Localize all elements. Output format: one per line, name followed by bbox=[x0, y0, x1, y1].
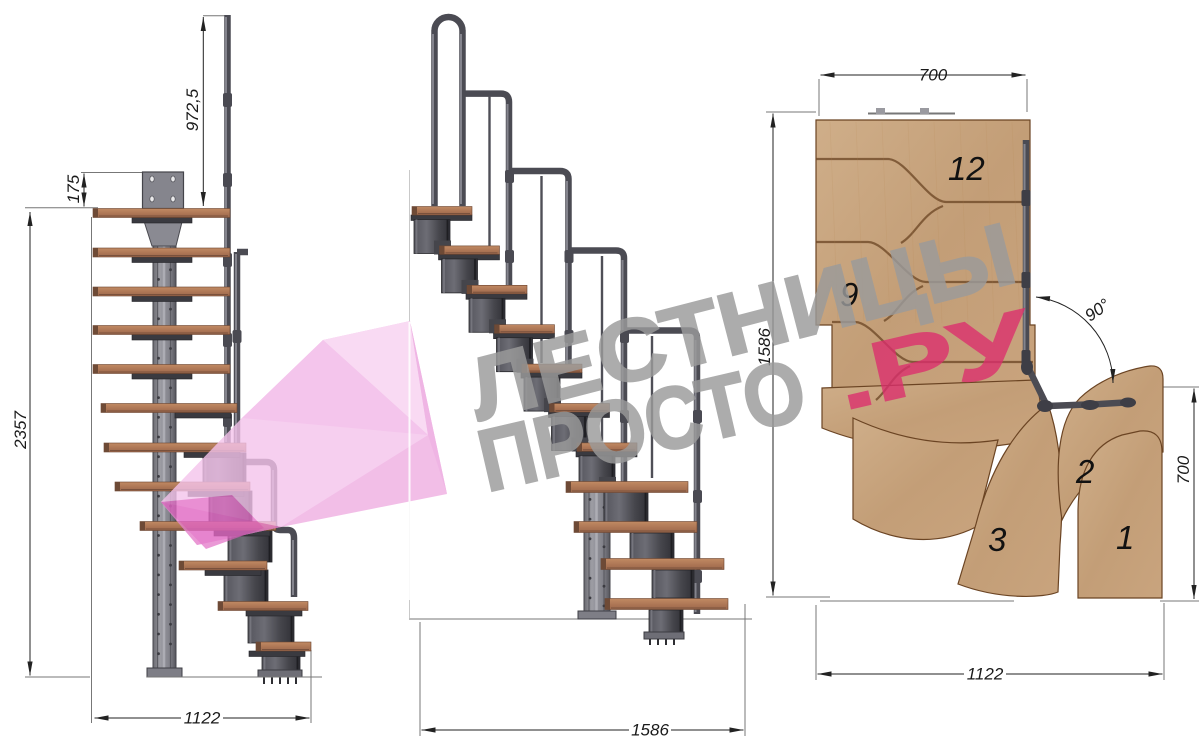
svg-text:12: 12 bbox=[948, 150, 985, 187]
svg-text:1122: 1122 bbox=[967, 665, 1004, 684]
svg-text:1: 1 bbox=[1116, 519, 1134, 556]
svg-text:700: 700 bbox=[919, 66, 948, 85]
svg-text:2357: 2357 bbox=[11, 411, 30, 450]
svg-text:1586: 1586 bbox=[631, 721, 669, 740]
svg-text:175: 175 bbox=[64, 174, 83, 203]
svg-text:3: 3 bbox=[988, 521, 1007, 558]
svg-text:972,5: 972,5 bbox=[183, 88, 202, 131]
svg-text:2: 2 bbox=[1075, 453, 1094, 490]
svg-text:1122: 1122 bbox=[184, 709, 221, 728]
svg-text:700: 700 bbox=[1174, 455, 1193, 484]
